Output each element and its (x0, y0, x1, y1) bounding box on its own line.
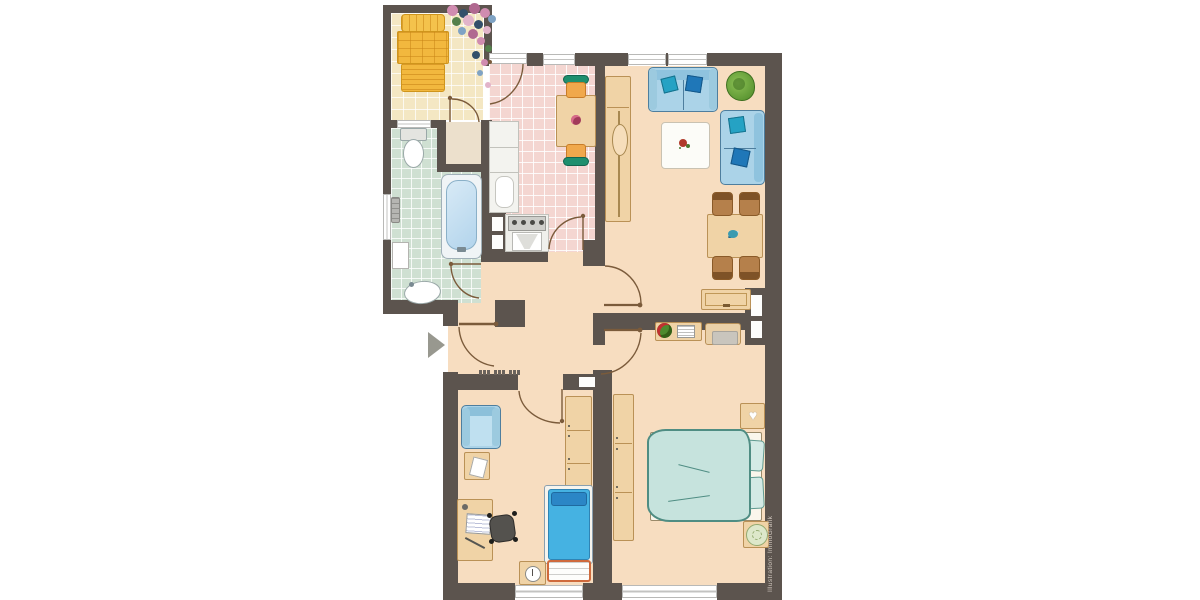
window-living-2 (668, 54, 707, 65)
floor-plan: ♥ (0, 0, 1200, 600)
kids-side-table (464, 452, 490, 480)
desk-lamp (462, 504, 468, 510)
shaft-niche-2 (492, 235, 503, 249)
stove-burner (530, 220, 535, 225)
chair-back-band (740, 272, 759, 279)
coat-hook (479, 370, 482, 375)
sofa-seat-divider (683, 80, 684, 110)
wardrobe-handle (616, 448, 618, 450)
flower-dot (468, 29, 478, 39)
coat-hook (509, 370, 512, 375)
flower-dot (474, 20, 483, 29)
flower-dot (485, 82, 491, 88)
dining-chair (739, 256, 760, 280)
window-kids-room (515, 585, 583, 598)
wardrobe-divider (615, 492, 632, 493)
wall-hall-stub (593, 313, 605, 345)
sun-lounger-foot (401, 63, 445, 92)
kids-nightstand (519, 561, 546, 585)
wardrobe-divider (567, 430, 590, 431)
loveseat-pillow-blue (730, 147, 750, 167)
kitchen-chair-top-seat (566, 82, 586, 98)
coat-hook (494, 370, 497, 375)
flower-dot (481, 59, 488, 66)
wardrobe-handle (616, 497, 618, 499)
wall-entry-piece (495, 300, 525, 327)
dining-table-deco (728, 230, 738, 238)
flower-dot (483, 26, 491, 34)
wardrobe-handle (616, 437, 618, 439)
chimney-niche-2 (751, 321, 762, 338)
living-tall-cabinet (605, 76, 631, 222)
kids-bed-pillow (551, 492, 587, 506)
wall-bedroom-divider (593, 370, 612, 583)
woven-basket-center (752, 530, 762, 540)
dining-chair (739, 192, 760, 216)
balcony-door-panel (489, 53, 527, 64)
kids-wardrobe (565, 396, 592, 496)
sofa-pillow-blue (685, 75, 703, 93)
toilet-bowl (403, 139, 424, 168)
wall-entry-stub (443, 312, 458, 326)
wall-closet-bottom (437, 164, 482, 172)
desk-chair-leg (512, 511, 517, 516)
bathtub-faucet (457, 247, 466, 252)
cabinet-handle-lens (612, 124, 628, 156)
nightstand-lamp-heart: ♥ (745, 407, 761, 423)
wall-kitchen-stub (583, 240, 605, 266)
flower-dot (485, 45, 492, 52)
flower-dot (469, 3, 480, 14)
kitchen-chair-bottom-back (563, 157, 589, 166)
wall-bathroom-left-1 (383, 120, 391, 194)
flower-dot (452, 17, 461, 26)
wardrobe-handle (616, 486, 618, 488)
coat-hook (517, 370, 520, 375)
sofa (648, 67, 718, 112)
armchair-seat (470, 416, 492, 446)
flower-dot (477, 37, 485, 45)
coat-hook (498, 370, 501, 375)
loveseat-pillow-teal (728, 116, 746, 134)
bathtub-basin (446, 180, 477, 250)
desk-chair-leg (513, 537, 518, 542)
flower-dot (463, 15, 474, 26)
window-bathroom-balcony (397, 120, 431, 128)
storage-closet-floor (442, 122, 482, 168)
kids-armchair (461, 405, 501, 449)
window-bathroom-left (383, 194, 391, 240)
coat-hook (502, 370, 505, 375)
sun-lounger-body (397, 31, 449, 64)
kids-desk (457, 499, 493, 561)
kids-wall-niche (579, 377, 595, 387)
desk-chair-leg (487, 513, 492, 518)
flower-dot (447, 5, 458, 16)
magazine (469, 456, 488, 478)
kitchen-table-deco (571, 115, 581, 125)
wardrobe-divider (567, 463, 590, 464)
armchair-arm-left (462, 408, 470, 446)
wall-kids-top-left (443, 374, 518, 390)
coat-hook (483, 370, 486, 375)
sun-lounger-head (401, 14, 445, 32)
window-living-1 (628, 54, 666, 65)
entrance-arrow-icon (428, 332, 445, 358)
desk-pencil (465, 537, 485, 549)
shaft-niche-1 (492, 217, 503, 231)
kids-chest (547, 560, 591, 582)
chair-back-band (713, 193, 732, 200)
sideboard-handle (723, 304, 730, 307)
console-plant (657, 323, 672, 338)
wall-balcony-left (383, 5, 391, 128)
chair-back-band (740, 193, 759, 200)
chimney-niche-1 (751, 295, 762, 316)
kitchen-counter-divider (490, 147, 518, 148)
wall-kids-left (443, 372, 458, 600)
bench-cushion (712, 331, 738, 345)
bathroom-shelf (392, 242, 409, 269)
desk-chair-leg (489, 539, 494, 544)
stove-burner (521, 220, 526, 225)
wall-kitchen-divider (595, 63, 605, 242)
flower-dot (488, 15, 496, 23)
dining-chair (712, 192, 733, 216)
stove-burner (539, 220, 544, 225)
alarm-clock-hand (532, 569, 533, 576)
nightstand-top: ♥ (740, 403, 765, 429)
window-master-bedroom (622, 585, 717, 598)
cabinet-divider (607, 107, 629, 108)
coat-hook (487, 370, 490, 375)
wash-basin-faucet (409, 282, 414, 287)
stove-burner (512, 220, 517, 225)
bedroom-bench (705, 323, 741, 345)
armchair-arm-right (492, 408, 500, 446)
flower-dot (472, 51, 480, 59)
kitchen-counter-sink-tray (495, 176, 514, 208)
wardrobe-divider (615, 443, 632, 444)
window-kitchen (543, 54, 575, 65)
bed-duvet (647, 429, 751, 522)
flower-dot (477, 70, 483, 76)
nightstand-stool (743, 521, 769, 548)
living-sideboard (701, 289, 751, 310)
wardrobe-handle (568, 468, 570, 470)
console-book (677, 325, 695, 338)
coat-hook (513, 370, 516, 375)
alarm-clock (525, 566, 541, 582)
sofa-armrest-left (649, 69, 657, 110)
wall-bottom-2 (583, 583, 622, 600)
wardrobe-handle (568, 458, 570, 460)
illustration-credit: Illustration: ImmoGrafik (767, 490, 781, 592)
radiator (391, 197, 400, 223)
wall-top-2 (527, 53, 543, 66)
sofa-armrest-right (709, 69, 717, 110)
living-plant-inner (733, 78, 745, 90)
flower-dot (458, 27, 466, 35)
wardrobe-handle (568, 425, 570, 427)
dining-chair (712, 256, 733, 280)
wardrobe-handle (568, 435, 570, 437)
coffee-table-deco (679, 139, 687, 147)
master-wardrobe (613, 394, 634, 541)
chair-back-band (713, 272, 732, 279)
